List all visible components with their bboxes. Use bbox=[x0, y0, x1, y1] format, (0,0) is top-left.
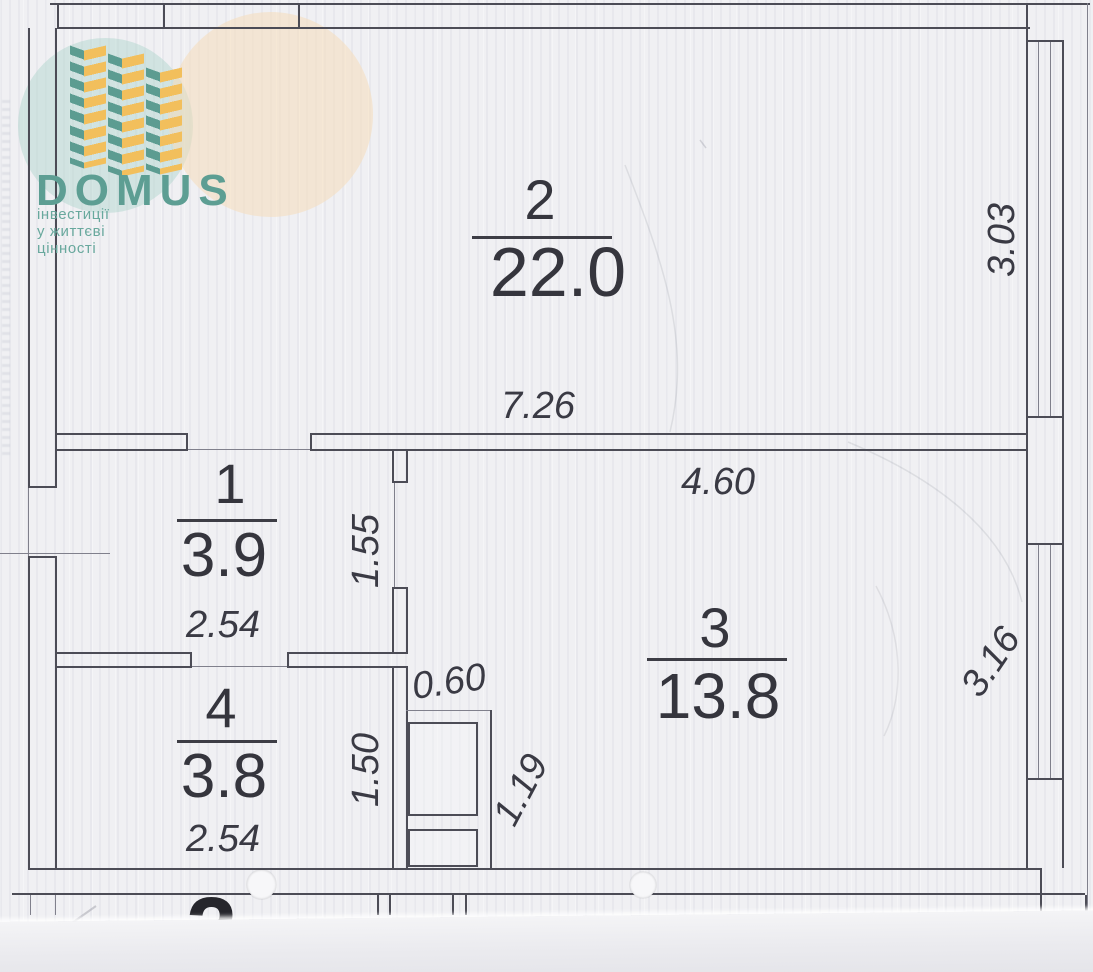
entrance-jamb-top bbox=[28, 486, 57, 488]
room4-top-wall-segB-bottom bbox=[287, 666, 408, 668]
room2-area: 22.0 bbox=[490, 237, 626, 307]
room2-door-opening-line bbox=[188, 449, 310, 450]
dim-room4-width: 2.54 bbox=[186, 820, 260, 858]
hall-right-wall-lower-right bbox=[406, 589, 408, 652]
window2-pane-line-1 bbox=[1038, 545, 1039, 778]
window1-bottom-sill bbox=[1026, 416, 1064, 418]
dim-room1-height: 1.55 bbox=[347, 514, 385, 588]
wall-bottom-top-line bbox=[28, 868, 1042, 870]
room4-top-wall-segA-bottom bbox=[55, 666, 192, 668]
below-tick-5 bbox=[452, 895, 454, 915]
tower-face-teal bbox=[108, 53, 122, 176]
tower-face-teal bbox=[146, 67, 160, 174]
hole-punch-left bbox=[247, 870, 276, 899]
right-pier-1-left bbox=[1026, 418, 1028, 545]
wall-top-tick-left bbox=[57, 3, 59, 29]
wall-right-outer-face bbox=[1087, 3, 1088, 915]
dim-room1-width: 2.54 bbox=[186, 606, 260, 644]
window1-pane-line-1 bbox=[1038, 42, 1039, 418]
wall-mid-segA-top bbox=[57, 433, 188, 435]
wall-left-outer-lower bbox=[28, 558, 30, 868]
dim-room2-height: 3.03 bbox=[983, 203, 1021, 277]
right-pier-2-left bbox=[1026, 780, 1028, 868]
wall-top-tick-1 bbox=[163, 3, 165, 29]
room4-top-wall-segB-top bbox=[287, 652, 408, 654]
vent-shaft-2 bbox=[408, 829, 478, 867]
dim-room4-height: 1.50 bbox=[347, 733, 385, 807]
vent-shaft-1 bbox=[408, 722, 478, 816]
tower-face-yellow bbox=[160, 67, 182, 174]
window1-top-sill bbox=[1026, 40, 1064, 42]
tower-face-teal bbox=[70, 45, 84, 168]
room2-number: 2 bbox=[524, 172, 555, 228]
tower-face-yellow bbox=[84, 45, 106, 168]
hall-right-wall-upper-left bbox=[392, 451, 394, 483]
hall-door-opening-line bbox=[394, 483, 395, 587]
wall-top-inner-line bbox=[57, 27, 1030, 29]
logo-tower-2 bbox=[108, 56, 144, 174]
below-tick-6 bbox=[465, 895, 467, 915]
wall-top-tick-2 bbox=[298, 3, 300, 29]
room1-area: 3.9 bbox=[181, 525, 267, 587]
window1-right bbox=[1062, 42, 1064, 418]
entrance-jamb-bottom bbox=[28, 556, 57, 558]
below-tick-2 bbox=[55, 895, 56, 915]
window2-pane-line-2 bbox=[1050, 545, 1051, 778]
room1-number: 1 bbox=[214, 456, 245, 512]
window1-left bbox=[1026, 42, 1028, 418]
hall-right-wall-upper-right bbox=[406, 451, 408, 483]
wall-left-outer-upper bbox=[28, 28, 30, 486]
floor-plan-scan: 2 22.0 1 3.9 3 13.8 4 3.8 7.26 3.03 4.60… bbox=[0, 0, 1093, 972]
wall-left-inner-lower bbox=[55, 558, 57, 868]
paper-bottom-edge bbox=[0, 910, 1093, 972]
wall-bottom-bottom-line bbox=[12, 893, 1085, 895]
entrance-opening-line bbox=[28, 488, 29, 556]
dim-room2-width: 7.26 bbox=[501, 387, 575, 425]
window2-left bbox=[1026, 545, 1028, 778]
wall-right-corner bbox=[1026, 3, 1028, 42]
wall-left-inner-upper bbox=[55, 28, 57, 486]
window2-right bbox=[1062, 545, 1064, 778]
niche-top-line bbox=[406, 710, 492, 711]
wall-top-outer-line bbox=[50, 3, 1090, 5]
logo-tower-1 bbox=[70, 48, 106, 166]
right-pier-1-right bbox=[1062, 418, 1064, 545]
wall-mid-segA-bottom bbox=[57, 449, 188, 451]
next-floor-label-partial: 2 bbox=[178, 894, 250, 920]
hole-punch-right bbox=[630, 872, 656, 898]
logo-tower-3 bbox=[146, 70, 182, 172]
room4-area: 3.8 bbox=[181, 746, 267, 808]
right-pier-2-right bbox=[1062, 780, 1064, 868]
dim-room3-width: 4.60 bbox=[681, 463, 755, 501]
room4-top-wall-segA-top bbox=[55, 652, 192, 654]
entrance-door-leaf bbox=[0, 553, 110, 554]
below-tick-3 bbox=[377, 895, 379, 915]
window1-pane-line-2 bbox=[1050, 42, 1051, 418]
below-tick-1 bbox=[30, 895, 31, 915]
logo-tagline: інвестиції у життєві цінності bbox=[37, 206, 110, 257]
room4-number: 4 bbox=[205, 680, 236, 736]
tower-face-yellow bbox=[122, 53, 144, 176]
partial-digit: 2 bbox=[186, 894, 237, 920]
window2-bottom-sill bbox=[1026, 778, 1064, 780]
wall-bottom-tick-right bbox=[1040, 868, 1042, 915]
window2-top-sill bbox=[1026, 543, 1064, 545]
dim-shaft-width: 0.60 bbox=[410, 658, 489, 706]
room4-door-opening-line bbox=[192, 666, 287, 667]
room3-area: 13.8 bbox=[656, 664, 781, 728]
hall-right-wall-lower-left bbox=[392, 589, 394, 652]
niche-right-line bbox=[490, 710, 492, 868]
room3-number: 3 bbox=[699, 600, 730, 656]
wall-mid-segB-top bbox=[310, 433, 1026, 435]
wall-mid-segB-bottom bbox=[310, 449, 1026, 451]
room4-right-wall-left-face bbox=[392, 668, 394, 868]
below-tick-4 bbox=[389, 895, 391, 915]
